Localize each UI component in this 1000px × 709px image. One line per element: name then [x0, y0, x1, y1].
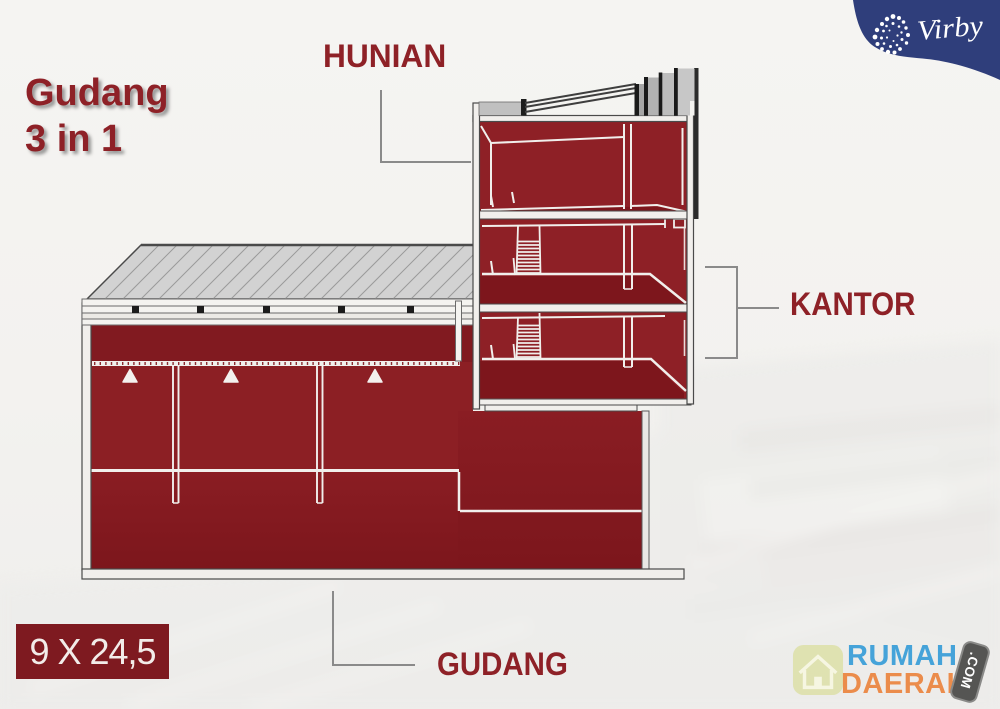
svg-text:Virby: Virby [916, 10, 985, 47]
